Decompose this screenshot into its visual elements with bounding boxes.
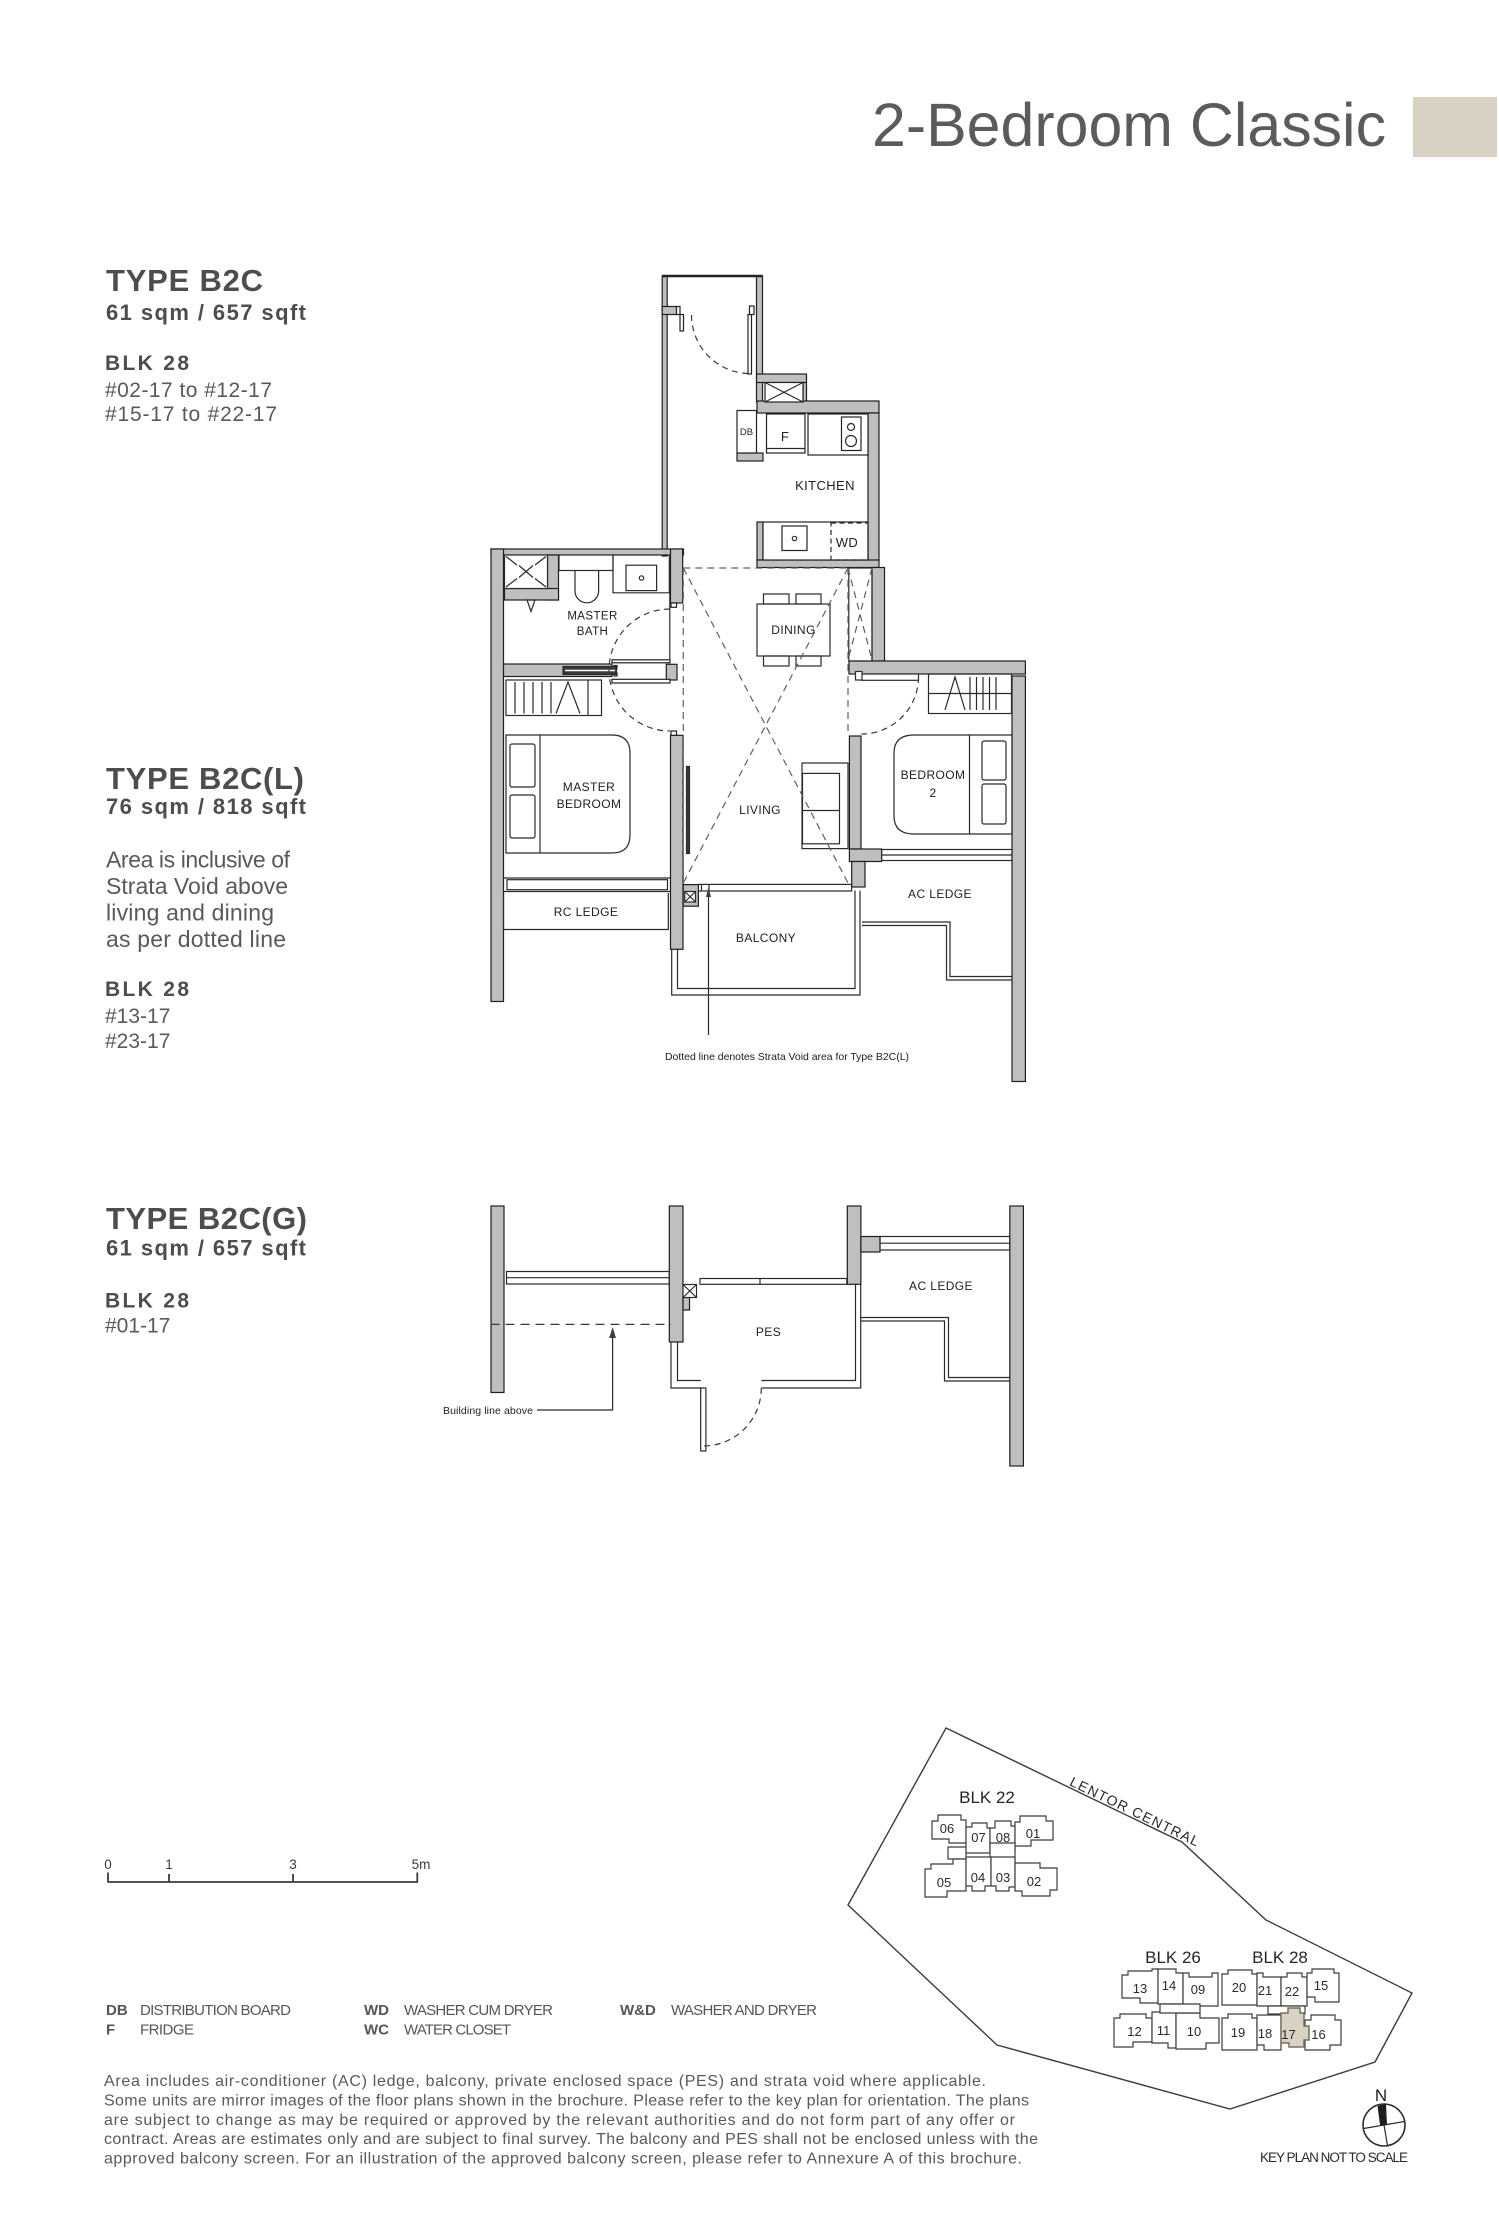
svg-text:01: 01 [1026, 1826, 1040, 1841]
svg-text:Area includes air-conditioner: Area includes air-conditioner (AC) ledge… [104, 2073, 986, 2090]
svg-text:#15-17 to #22-17: #15-17 to #22-17 [105, 403, 277, 426]
svg-text:61 sqm / 657 sqft: 61 sqm / 657 sqft [106, 300, 307, 325]
svg-text:are subject to change as may b: are subject to change as may be required… [104, 2112, 1016, 2129]
svg-text:LENTOR CENTRAL: LENTOR CENTRAL [1068, 1773, 1203, 1849]
svg-text:17: 17 [1281, 2027, 1295, 2042]
svg-text:10: 10 [1187, 2024, 1201, 2039]
svg-text:N: N [1375, 2086, 1387, 2105]
svg-text:15: 15 [1314, 1978, 1328, 1993]
svg-text:18: 18 [1258, 2026, 1272, 2041]
svg-text:KEY PLAN NOT TO SCALE: KEY PLAN NOT TO SCALE [1260, 2150, 1408, 2165]
svg-text:approved balcony screen. For a: approved balcony screen. For an illustra… [104, 2151, 1022, 2168]
svg-text:BLK 28: BLK 28 [105, 978, 189, 1001]
svg-text:#13-17: #13-17 [105, 1005, 170, 1028]
svg-text:WASHER AND DRYER: WASHER AND DRYER [671, 2002, 817, 2019]
svg-text:W&D: W&D [620, 2002, 656, 2019]
svg-text:TYPE B2C(L): TYPE B2C(L) [106, 761, 304, 796]
svg-text:61 sqm / 657 sqft: 61 sqm / 657 sqft [106, 1236, 307, 1261]
svg-text:Strata Void above: Strata Void above [106, 873, 288, 899]
svg-text:#01-17: #01-17 [105, 1315, 170, 1338]
svg-text:KITCHEN: KITCHEN [795, 478, 855, 493]
svg-text:12: 12 [1127, 2024, 1141, 2039]
svg-text:5m: 5m [412, 1857, 431, 1872]
svg-text:22: 22 [1285, 1984, 1299, 1999]
svg-text:AC LEDGE: AC LEDGE [908, 887, 972, 901]
svg-text:DINING: DINING [771, 623, 815, 637]
svg-text:08: 08 [996, 1830, 1010, 1845]
svg-text:14: 14 [1162, 1978, 1176, 1993]
svg-text:04: 04 [971, 1870, 985, 1885]
svg-text:BLK 28: BLK 28 [105, 352, 189, 375]
svg-text:DISTRIBUTION BOARD: DISTRIBUTION BOARD [140, 2002, 291, 2019]
svg-text:09: 09 [1191, 1982, 1205, 1997]
svg-text:FRIDGE: FRIDGE [140, 2022, 194, 2039]
svg-text:1: 1 [165, 1857, 173, 1872]
svg-text:BLK 22: BLK 22 [959, 1788, 1015, 1807]
svg-text:2-Bedroom Classic: 2-Bedroom Classic [872, 91, 1386, 159]
svg-text:TYPE B2C: TYPE B2C [106, 263, 263, 298]
svg-text:Area is inclusive of: Area is inclusive of [106, 847, 291, 873]
svg-text:as per dotted line: as per dotted line [106, 926, 286, 952]
svg-text:13: 13 [1133, 1981, 1147, 1996]
svg-text:2: 2 [929, 786, 936, 800]
svg-text:BEDROOM: BEDROOM [557, 797, 622, 811]
svg-text:F: F [106, 2022, 115, 2039]
svg-text:76 sqm / 818 sqft: 76 sqm / 818 sqft [106, 794, 307, 819]
svg-text:0: 0 [104, 1857, 112, 1872]
svg-text:MASTER: MASTER [563, 780, 615, 794]
svg-text:DB: DB [740, 427, 753, 438]
svg-text:11: 11 [1157, 2023, 1171, 2038]
svg-text:Dotted line denotes Strata Voi: Dotted line denotes Strata Void area for… [665, 1051, 909, 1063]
svg-text:Some units are mirror images o: Some units are mirror images of the floo… [104, 2092, 1029, 2109]
svg-text:living and dining: living and dining [106, 900, 274, 926]
svg-text:BLK 26: BLK 26 [1145, 1948, 1201, 1967]
svg-text:16: 16 [1311, 2027, 1325, 2042]
svg-text:02: 02 [1027, 1874, 1041, 1889]
svg-text:WASHER CUM DRYER: WASHER CUM DRYER [404, 2002, 553, 2019]
svg-text:#02-17 to #12-17: #02-17 to #12-17 [105, 379, 272, 402]
svg-text:20: 20 [1232, 1980, 1246, 1995]
svg-text:06: 06 [940, 1821, 954, 1836]
svg-text:RC LEDGE: RC LEDGE [554, 905, 619, 919]
svg-text:Building line above: Building line above [443, 1405, 533, 1417]
svg-text:03: 03 [996, 1870, 1010, 1885]
svg-text:BLK 28: BLK 28 [105, 1290, 189, 1313]
svg-text:F: F [781, 429, 789, 444]
svg-text:AC LEDGE: AC LEDGE [909, 1279, 973, 1293]
svg-text:BEDROOM: BEDROOM [901, 768, 966, 782]
svg-text:21: 21 [1258, 1983, 1272, 1998]
svg-text:BALCONY: BALCONY [736, 931, 796, 945]
svg-text:LIVING: LIVING [739, 803, 781, 817]
svg-text:BLK 28: BLK 28 [1252, 1948, 1308, 1967]
svg-text:PES: PES [756, 1325, 781, 1339]
svg-text:WC: WC [364, 2022, 389, 2039]
svg-text:DB: DB [106, 2002, 128, 2019]
svg-text:05: 05 [937, 1875, 951, 1890]
svg-text:TYPE B2C(G): TYPE B2C(G) [106, 1201, 307, 1236]
svg-text:WATER CLOSET: WATER CLOSET [404, 2022, 511, 2039]
svg-text:MASTER: MASTER [567, 611, 617, 623]
svg-text:3: 3 [289, 1857, 297, 1872]
svg-text:19: 19 [1231, 2025, 1245, 2040]
svg-text:WD: WD [364, 2002, 389, 2019]
svg-text:BATH: BATH [577, 626, 608, 638]
svg-text:07: 07 [971, 1830, 985, 1845]
svg-text:#23-17: #23-17 [105, 1030, 170, 1053]
svg-text:contract. Areas are estimates: contract. Areas are estimates only and a… [104, 2131, 1038, 2148]
svg-text:WD: WD [836, 535, 858, 550]
